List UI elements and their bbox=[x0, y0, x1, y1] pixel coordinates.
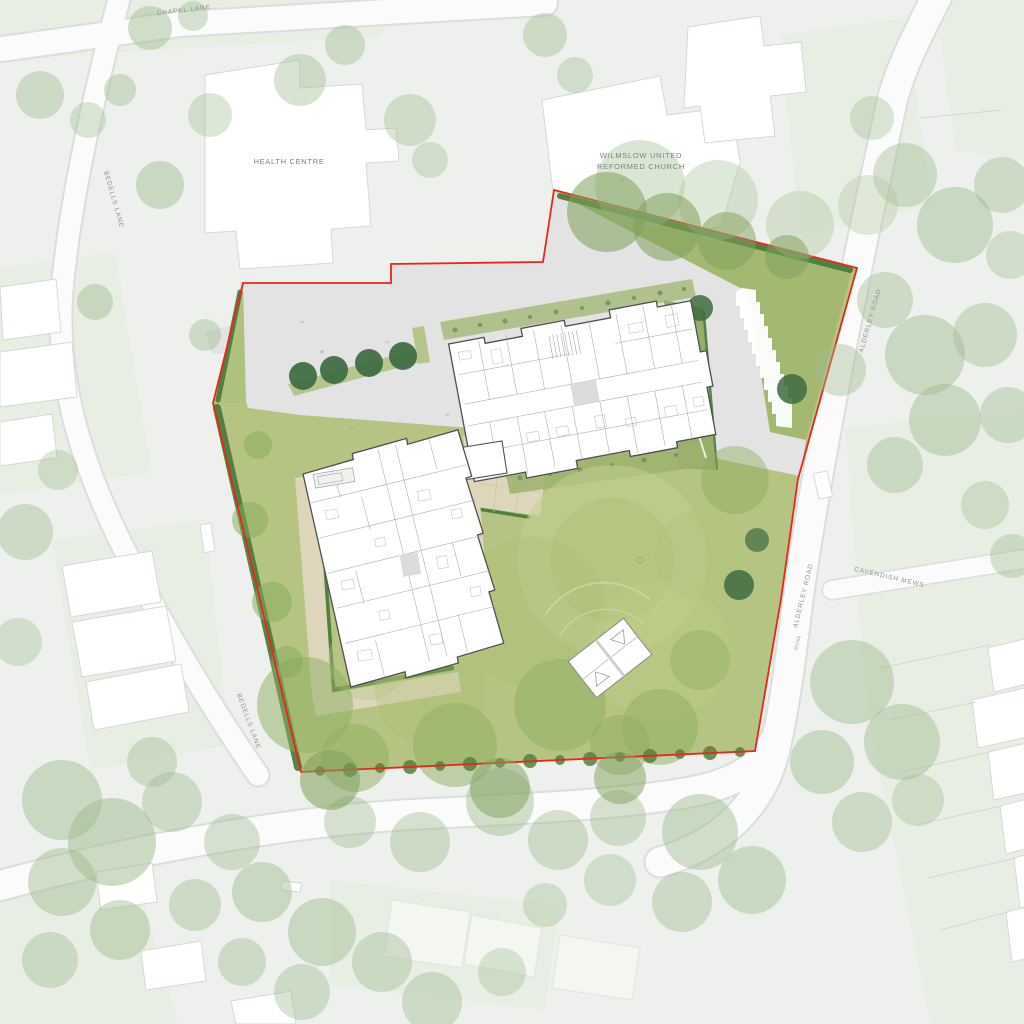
label-church-line2: REFORMED CHURCH bbox=[597, 162, 685, 171]
site-plan-svg: CHAPEL LANE HEALTH CENTRE WILMSLOW UNITE… bbox=[0, 0, 1024, 1024]
site-plan-canvas: CHAPEL LANE HEALTH CENTRE WILMSLOW UNITE… bbox=[0, 0, 1024, 1024]
label-health-centre: HEALTH CENTRE bbox=[253, 157, 324, 166]
building-core bbox=[400, 552, 421, 577]
building-core bbox=[570, 380, 600, 406]
label-church-line1: WILMSLOW UNITED bbox=[600, 151, 682, 160]
